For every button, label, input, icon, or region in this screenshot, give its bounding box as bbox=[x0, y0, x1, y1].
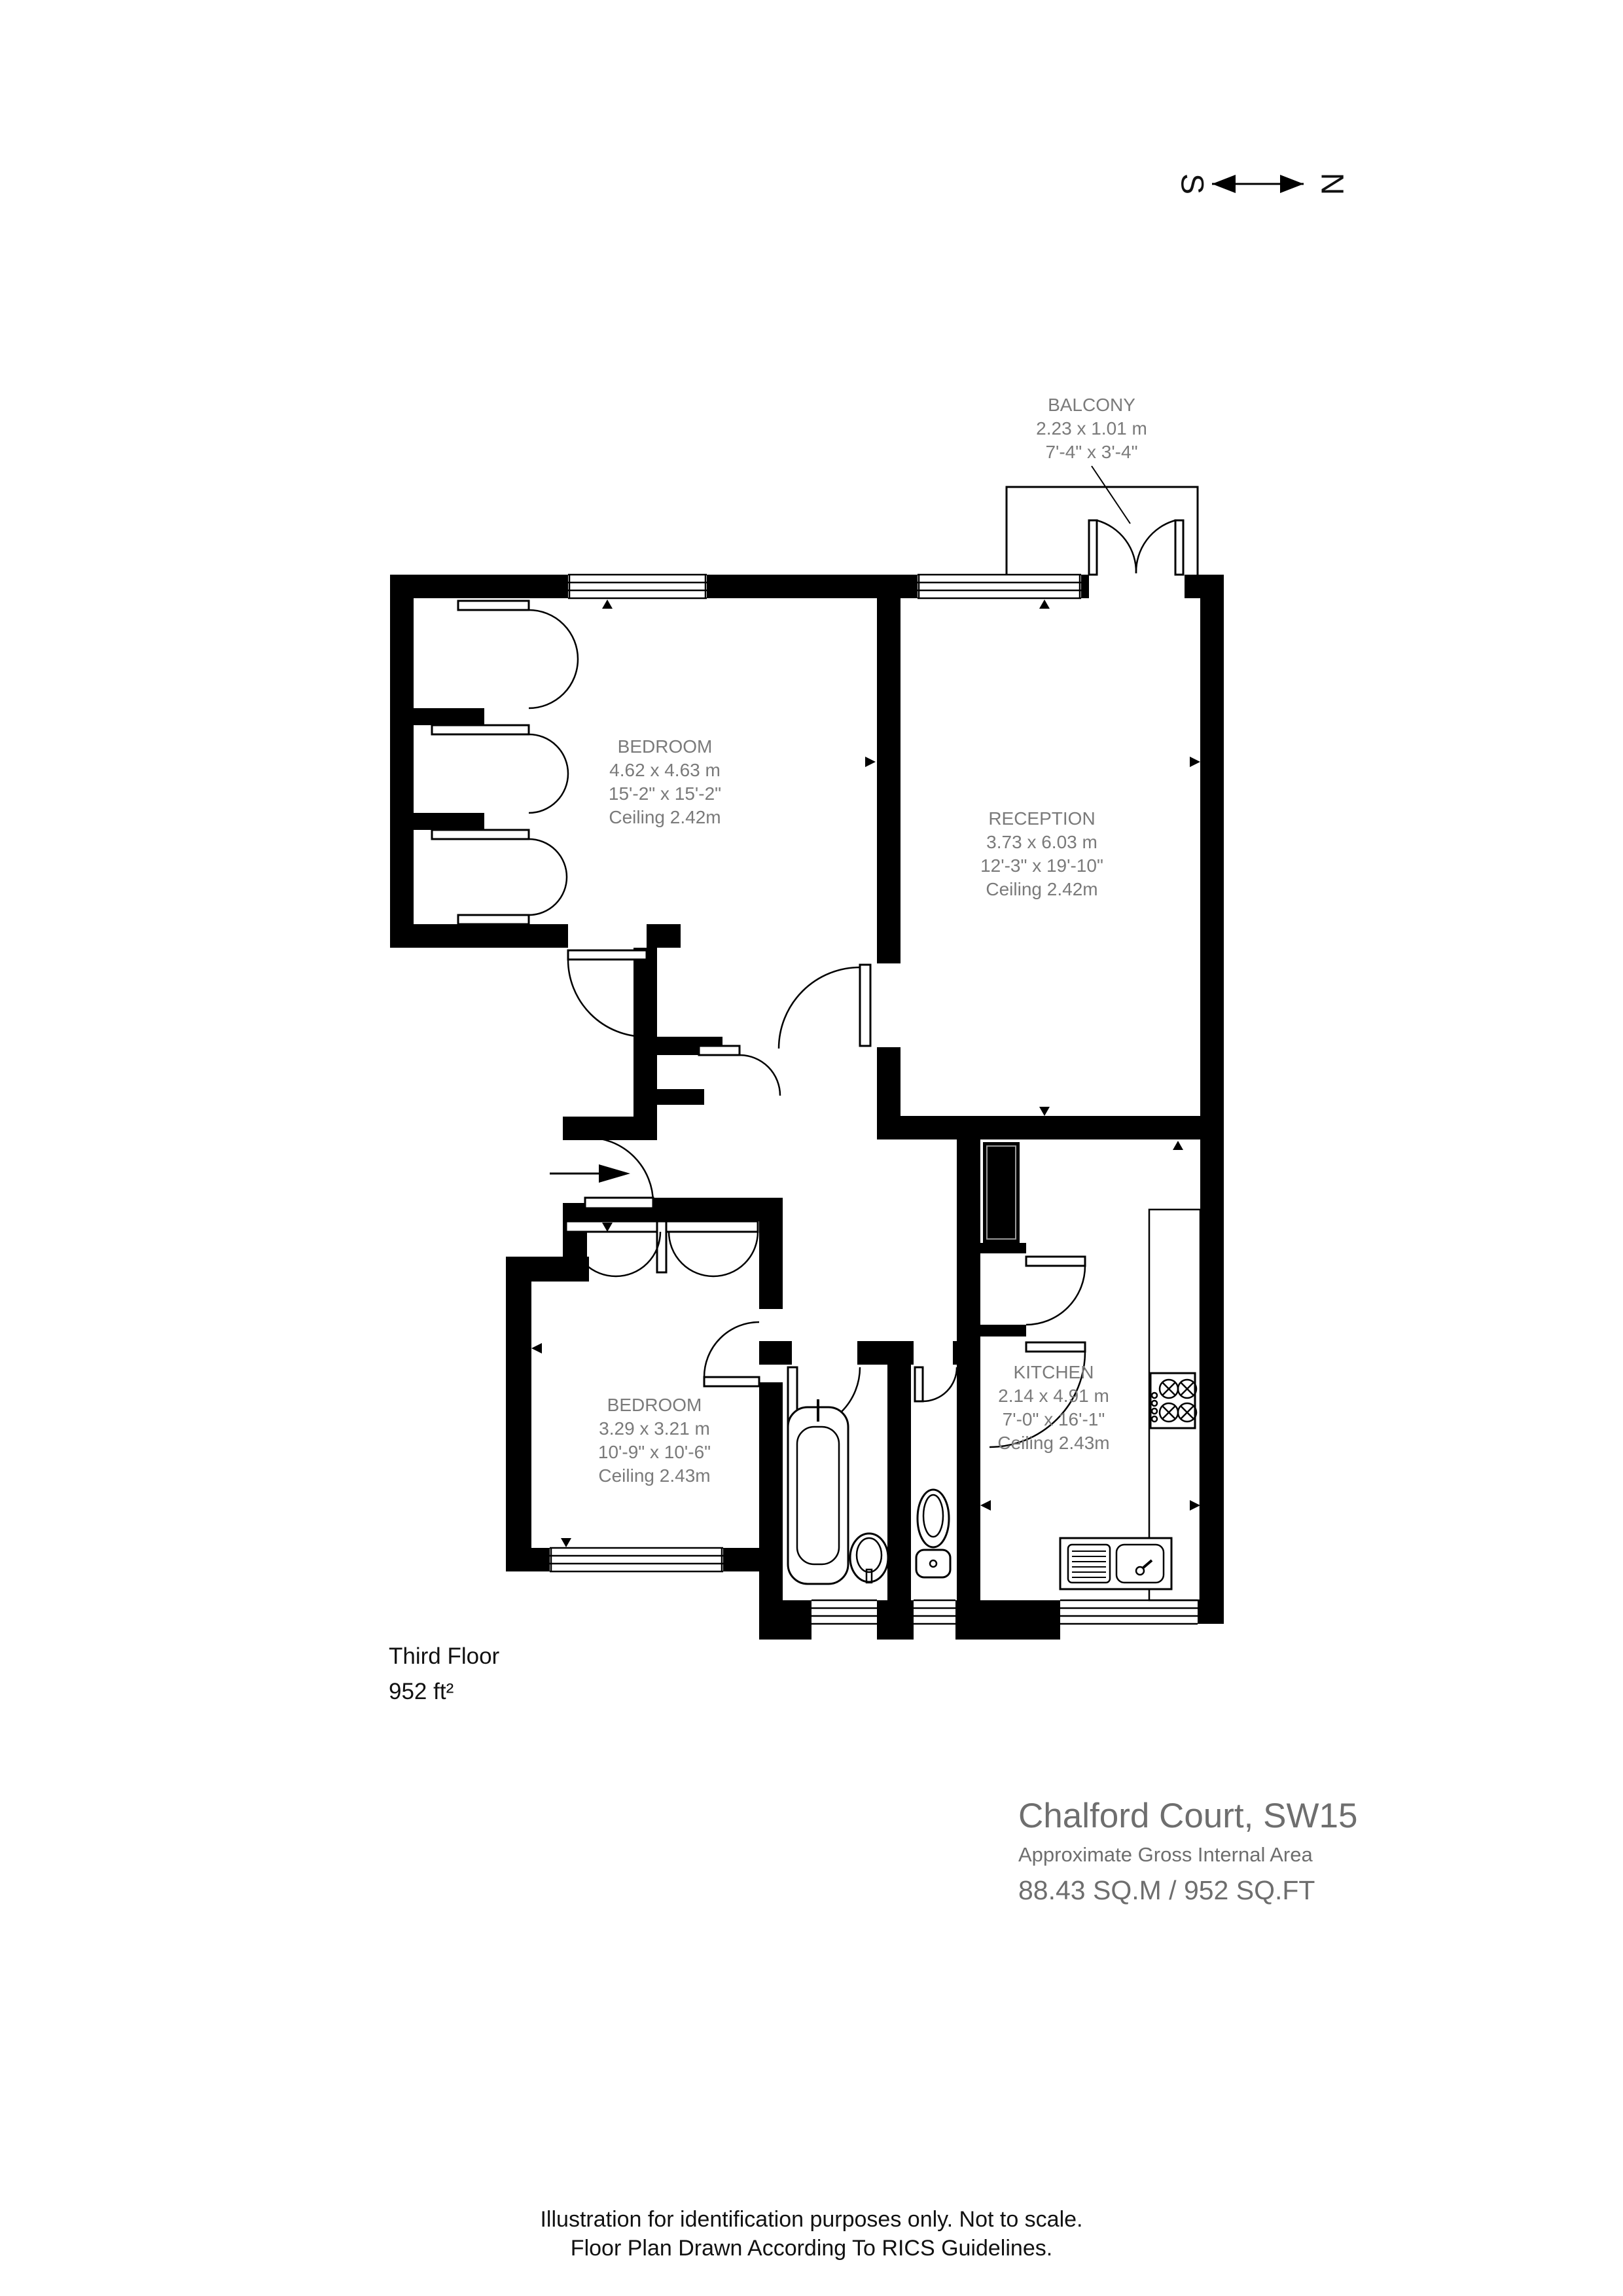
door-wc bbox=[915, 1367, 957, 1401]
bedroom1-metric: 4.62 x 4.63 m bbox=[609, 760, 721, 780]
boiler-unit bbox=[983, 1142, 1020, 1243]
compass-icon: S N bbox=[1174, 173, 1349, 196]
reception-name: RECEPTION bbox=[988, 808, 1095, 829]
window-kitchen bbox=[1060, 1600, 1198, 1624]
floorplan-drawing: S N bbox=[0, 0, 1623, 2296]
footer-disclaimer: Illustration for identification purposes… bbox=[540, 2207, 1082, 2261]
window-bedroom1 bbox=[568, 575, 707, 598]
bedroom2-ceiling: Ceiling 2.43m bbox=[598, 1465, 710, 1486]
bathtub-icon bbox=[788, 1399, 848, 1584]
title-area: 88.43 SQ.M / 952 SQ.FT bbox=[1018, 1875, 1315, 1905]
bedroom1-ceiling: Ceiling 2.42m bbox=[609, 807, 721, 827]
window-bedroom2 bbox=[550, 1548, 723, 1571]
compass-north-label: N bbox=[1314, 173, 1349, 196]
wardrobe-bedroom2 bbox=[566, 1221, 758, 1276]
door-hall-closet bbox=[699, 1046, 780, 1096]
bedroom2-name: BEDROOM bbox=[607, 1395, 702, 1415]
door-kitchen-lobby bbox=[1026, 1257, 1085, 1325]
bedroom2-imperial: 10'-9" x 10'-6" bbox=[598, 1442, 711, 1462]
compass-south-label: S bbox=[1174, 173, 1209, 194]
kitchen-sink-icon bbox=[1060, 1538, 1171, 1589]
room-label-bedroom2: BEDROOM 3.29 x 3.21 m 10'-9" x 10'-6" Ce… bbox=[598, 1395, 711, 1486]
window-bathroom bbox=[811, 1600, 877, 1624]
hob-icon bbox=[1150, 1373, 1196, 1428]
page-title: Chalford Court, SW15 bbox=[1018, 1797, 1357, 1835]
balcony-metric: 2.23 x 1.01 m bbox=[1036, 418, 1147, 439]
balcony-structure bbox=[1007, 466, 1198, 575]
door-reception bbox=[779, 965, 870, 1049]
kitchen-metric: 2.14 x 4.91 m bbox=[998, 1386, 1109, 1406]
wardrobe-bedroom1 bbox=[432, 601, 578, 924]
room-label-balcony: BALCONY 2.23 x 1.01 m 7'-4" x 3'-4" bbox=[1036, 395, 1147, 462]
bedroom1-name: BEDROOM bbox=[618, 736, 713, 757]
title-block: Chalford Court, SW15 Approximate Gross I… bbox=[1018, 1797, 1357, 1905]
balcony-imperial: 7'-4" x 3'-4" bbox=[1045, 442, 1137, 462]
window-reception bbox=[918, 575, 1081, 598]
kitchen-ceiling: Ceiling 2.43m bbox=[997, 1433, 1109, 1453]
bedroom2-metric: 3.29 x 3.21 m bbox=[599, 1418, 710, 1439]
room-label-bedroom1: BEDROOM 4.62 x 4.63 m 15'-2" x 15'-2" Ce… bbox=[609, 736, 721, 827]
floor-area: 952 ft² bbox=[389, 1679, 454, 1704]
bedroom1-imperial: 15'-2" x 15'-2" bbox=[609, 783, 721, 804]
reception-ceiling: Ceiling 2.42m bbox=[986, 879, 1097, 899]
window-wc bbox=[914, 1600, 955, 1624]
balcony-name: BALCONY bbox=[1048, 395, 1135, 415]
title-subtitle: Approximate Gross Internal Area bbox=[1018, 1843, 1313, 1866]
balcony-leader-line bbox=[1092, 466, 1130, 524]
floor-name: Third Floor bbox=[389, 1643, 500, 1669]
floor-info: Third Floor 952 ft² bbox=[389, 1643, 500, 1704]
floorplan-page: S N bbox=[0, 0, 1623, 2296]
wash-basin-icon bbox=[850, 1534, 888, 1583]
room-label-reception: RECEPTION 3.73 x 6.03 m 12'-3" x 19'-10"… bbox=[980, 808, 1103, 899]
footer-line2: Floor Plan Drawn According To RICS Guide… bbox=[571, 2236, 1052, 2261]
door-bedroom2 bbox=[704, 1322, 759, 1386]
kitchen-name: KITCHEN bbox=[1014, 1362, 1094, 1382]
toilet-icon bbox=[916, 1490, 950, 1577]
kitchen-imperial: 7'-0" x 16'-1" bbox=[1003, 1409, 1105, 1429]
reception-imperial: 12'-3" x 19'-10" bbox=[980, 855, 1103, 876]
entry-arrow-icon bbox=[550, 1164, 630, 1183]
reception-metric: 3.73 x 6.03 m bbox=[986, 832, 1097, 852]
room-label-kitchen: KITCHEN 2.14 x 4.91 m 7'-0" x 16'-1" Cei… bbox=[997, 1362, 1109, 1453]
footer-line1: Illustration for identification purposes… bbox=[540, 2207, 1082, 2232]
